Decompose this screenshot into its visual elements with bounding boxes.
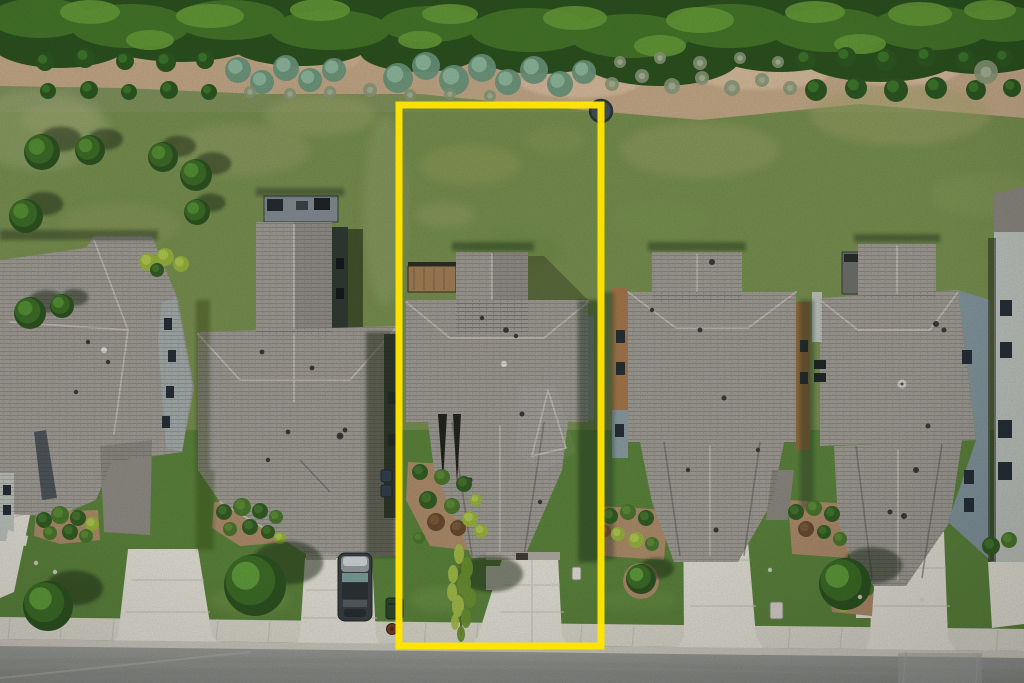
aerial-photo <box>0 0 1024 683</box>
aerial-photo-canvas <box>0 0 1024 683</box>
